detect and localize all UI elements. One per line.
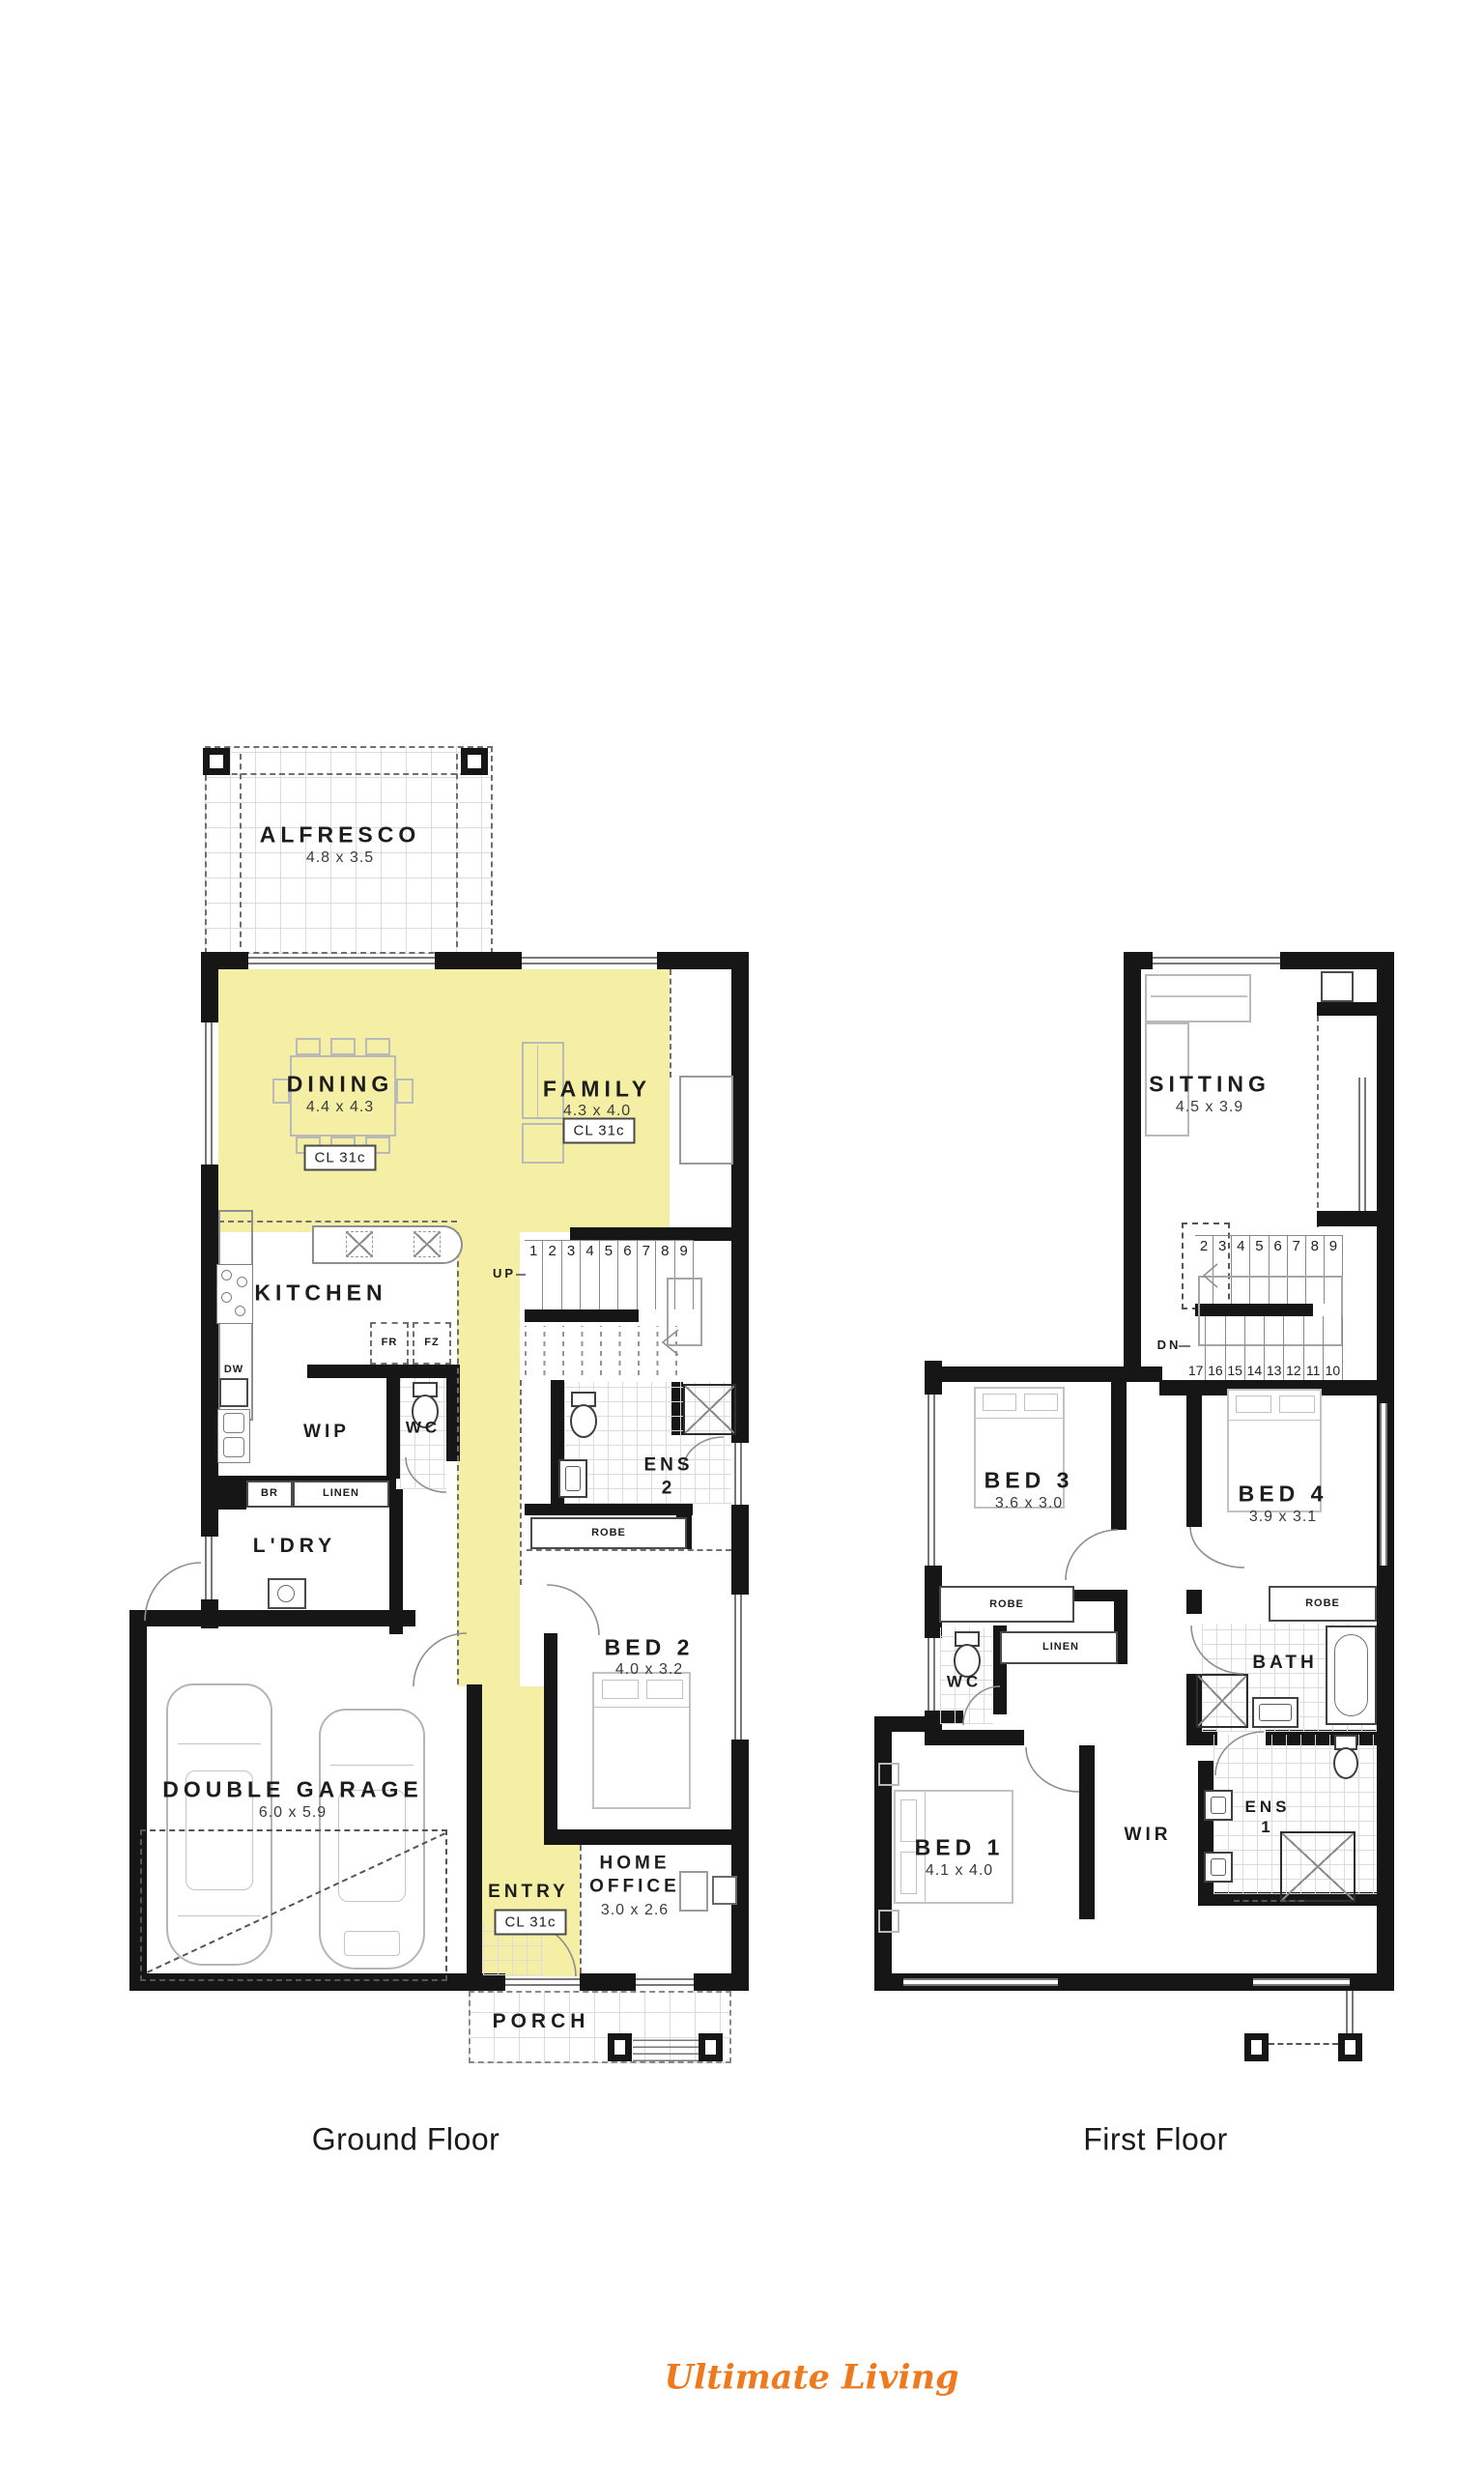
stair-tread: 14 [1245,1316,1265,1380]
door-arc [1191,1625,1243,1674]
stair-number: 16 [1208,1363,1223,1378]
window [927,1395,935,1566]
window [927,1638,935,1715]
wall [1186,1590,1202,1614]
pillow [1024,1394,1058,1411]
room-label-bed4: BED 4 [1239,1481,1328,1509]
room-label-ens1: ENS 1 [1236,1797,1299,1838]
stair-number: 14 [1247,1363,1263,1378]
caption-ground-floor: Ground Floor [312,2122,500,2158]
porch-column-line [1346,1991,1354,2035]
sofa-icon [1145,974,1251,1022]
stair-number: 11 [1306,1363,1321,1378]
balcony-post [1244,2033,1269,2061]
stair-number: 9 [1329,1238,1337,1254]
window [1253,1978,1350,1986]
stair-number: 17 [1188,1363,1204,1378]
label-robe: ROBE [1305,1597,1340,1611]
bedside-table [878,1910,899,1933]
basin [1211,1858,1226,1876]
bed-fold-line [1229,1420,1320,1421]
bowl [1333,1747,1358,1779]
room-dims-sitting: 4.5 x 3.9 [1176,1098,1243,1117]
room-label-bath: BATH [1252,1652,1317,1675]
stair-tread: 16 [1206,1316,1225,1380]
pillow [983,1394,1016,1411]
sitting-niche [1321,971,1354,1002]
wall [925,1366,1162,1382]
stair-number: 2 [1200,1238,1208,1254]
floorplan-page: ALFRESCO 4.8 x 3.5 [0,0,1484,2474]
vanity-icon [1204,1852,1233,1883]
room-label-sitting: SITTING [1149,1071,1270,1099]
room-label-bed3: BED 3 [985,1467,1074,1495]
balcony-dash [1269,2043,1338,2045]
shower-screen [1234,1900,1304,1902]
shower-icon [1280,1831,1356,1902]
room-dims-bed3: 3.6 x 3.0 [995,1494,1063,1513]
label-linen: LINEN [1042,1641,1079,1654]
stair-number: 3 [1218,1238,1226,1254]
wall [1111,1382,1127,1530]
room-label-wc: WC [947,1671,982,1691]
stair-number: 6 [1273,1238,1281,1254]
wall [1079,1745,1095,1919]
window [1153,957,1280,964]
wall [1317,1002,1377,1016]
room-label-bed1: BED 1 [915,1834,1005,1862]
bed-fold-line [976,1418,1063,1419]
room-dims-bed4: 3.9 x 3.1 [1249,1508,1317,1527]
leader-line [1179,1345,1190,1347]
room-dims-bed1: 4.1 x 4.0 [926,1861,993,1881]
basin [1259,1704,1292,1721]
stair-tread: 13 [1265,1316,1284,1380]
door-arc [1215,1732,1264,1775]
window [1380,1403,1387,1566]
door-arc [963,1686,1000,1725]
stair-number: 15 [1227,1363,1242,1378]
bedside-table [878,1763,899,1786]
tall-window [1358,1078,1366,1223]
wall [925,1730,1024,1745]
vanity-icon [1252,1697,1298,1728]
stair-direction-arrow [1200,1262,1219,1289]
room-label-wir: WIR [1125,1824,1172,1847]
sofa-line [1151,995,1247,997]
stair-tread: 12 [1284,1316,1303,1380]
wall [1124,952,1141,1380]
door-arc [1026,1747,1079,1792]
window [903,1978,1058,1986]
post-hole [1345,2040,1356,2055]
shower-icon [1196,1674,1248,1728]
first-floor-plan: 2 3 4 5 6 7 8 9 17 16 15 14 13 12 11 10 … [0,0,1484,2474]
staircase-first-bottom-run: 17 16 15 14 13 12 11 10 [1186,1316,1343,1380]
tub-inner [1334,1634,1368,1716]
stair-number: 8 [1311,1238,1319,1254]
stair-number: 10 [1326,1363,1341,1378]
vanity-icon [1204,1790,1233,1821]
brand-logo: Ultimate Living [664,2358,958,2398]
pillow [1279,1395,1315,1413]
wall [1186,1382,1202,1527]
pillow [1236,1395,1271,1413]
wall [874,1716,892,1991]
stair-number: 5 [1255,1238,1263,1254]
void-boundary [1317,1016,1319,1227]
door-arc [1066,1530,1118,1580]
stair-number: 4 [1237,1238,1244,1254]
stair-tread: 15 [1226,1316,1245,1380]
bathtub-icon [1326,1625,1377,1725]
balcony-post [1338,2033,1362,2061]
caption-first-floor: First Floor [1083,2122,1228,2158]
stair-tread: 17 [1186,1316,1206,1380]
stair-number: 12 [1286,1363,1301,1378]
toilet-icon [1331,1735,1360,1779]
stair-tread: 11 [1304,1316,1324,1380]
post-hole [1251,2040,1262,2055]
label-robe: ROBE [989,1598,1024,1612]
wall [1317,1211,1394,1226]
stair-number: 7 [1293,1238,1300,1254]
stair-tread: 10 [1324,1316,1343,1380]
label-dn: DN [1157,1338,1182,1353]
door-arc [1190,1527,1244,1568]
stair-number: 13 [1267,1363,1282,1378]
basin [1211,1797,1226,1814]
